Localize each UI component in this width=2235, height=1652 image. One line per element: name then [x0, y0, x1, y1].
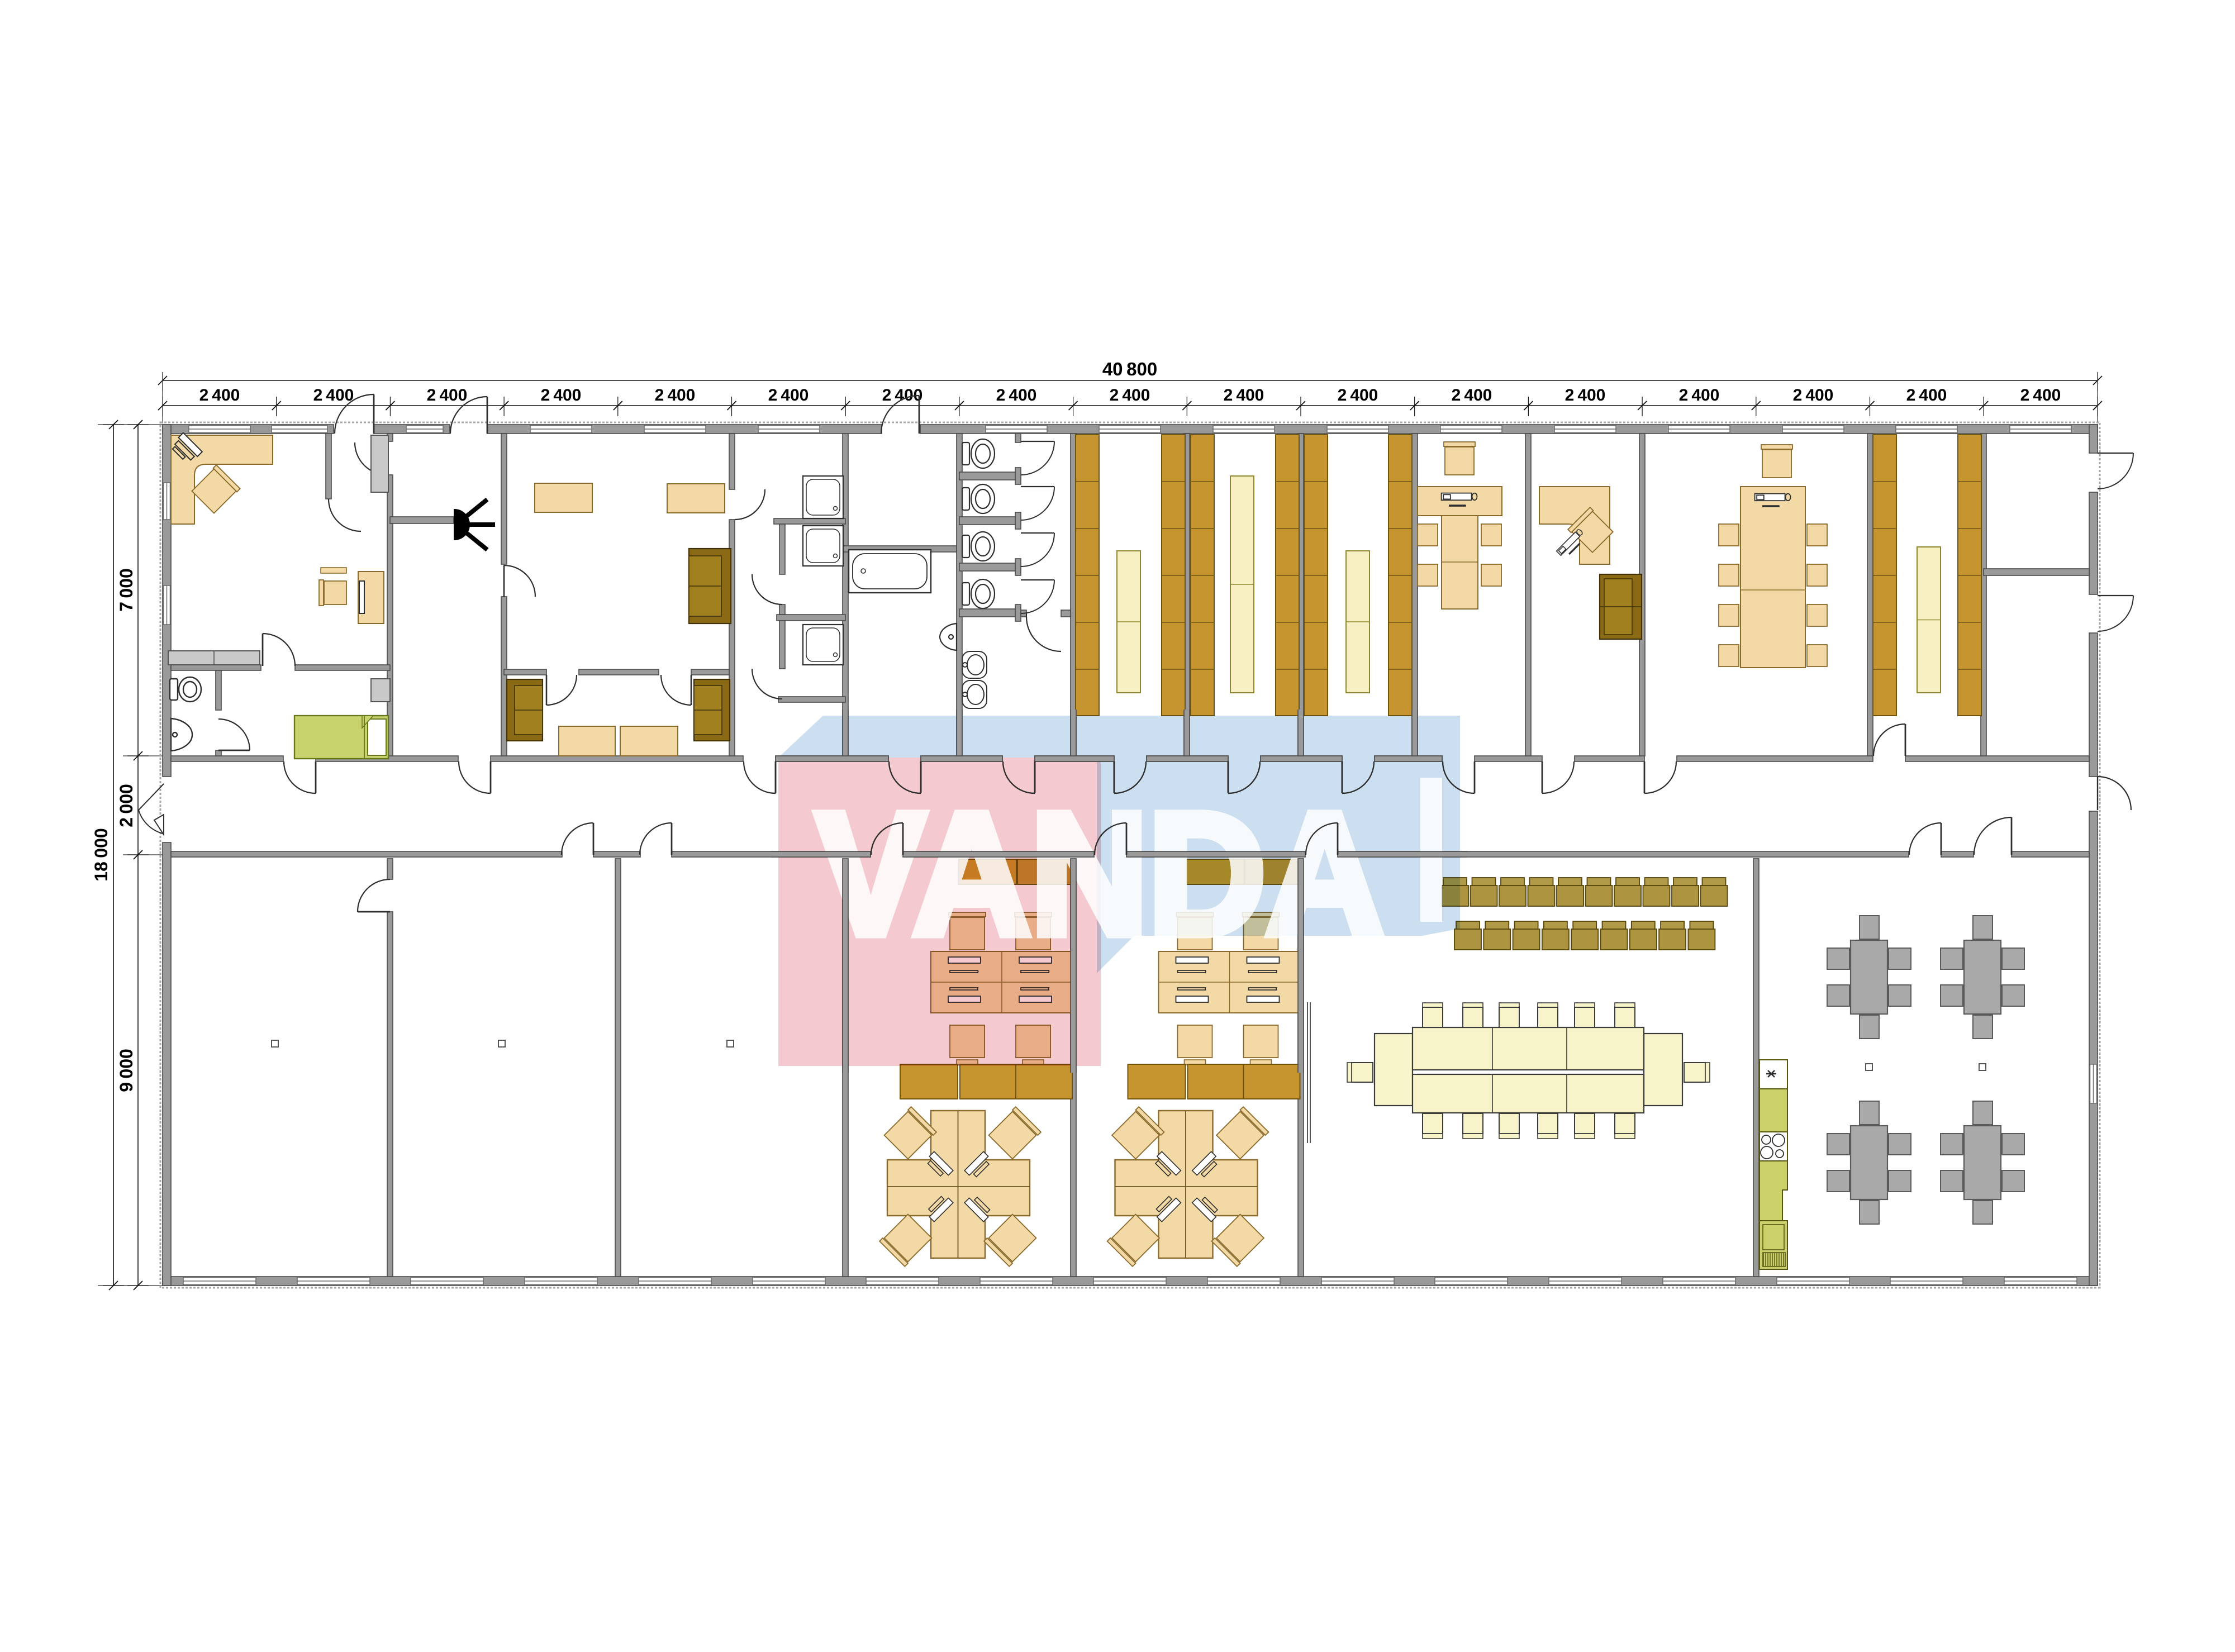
svg-text:18 000: 18 000: [91, 828, 111, 881]
svg-text:2 400: 2 400: [1110, 386, 1150, 404]
svg-text:2 400: 2 400: [1224, 386, 1264, 404]
svg-text:2 400: 2 400: [1906, 386, 1947, 404]
svg-text:2 000: 2 000: [116, 784, 136, 827]
svg-text:2 400: 2 400: [768, 386, 809, 404]
svg-text:2 400: 2 400: [1565, 386, 1606, 404]
svg-text:9 000: 9 000: [116, 1049, 136, 1092]
svg-text:2 400: 2 400: [655, 386, 696, 404]
svg-text:2 400: 2 400: [996, 386, 1037, 404]
svg-text:7 000: 7 000: [116, 568, 136, 612]
svg-text:2 400: 2 400: [1338, 386, 1378, 404]
svg-text:2 400: 2 400: [427, 386, 468, 404]
svg-text:2 400: 2 400: [1793, 386, 1834, 404]
svg-text:2 400: 2 400: [1452, 386, 1492, 404]
svg-text:2 400: 2 400: [2020, 386, 2061, 404]
svg-text:2 400: 2 400: [541, 386, 582, 404]
svg-text:2 400: 2 400: [313, 386, 354, 404]
svg-text:40 800: 40 800: [1102, 359, 1157, 379]
svg-text:2 400: 2 400: [199, 386, 240, 404]
svg-text:2 400: 2 400: [1679, 386, 1720, 404]
